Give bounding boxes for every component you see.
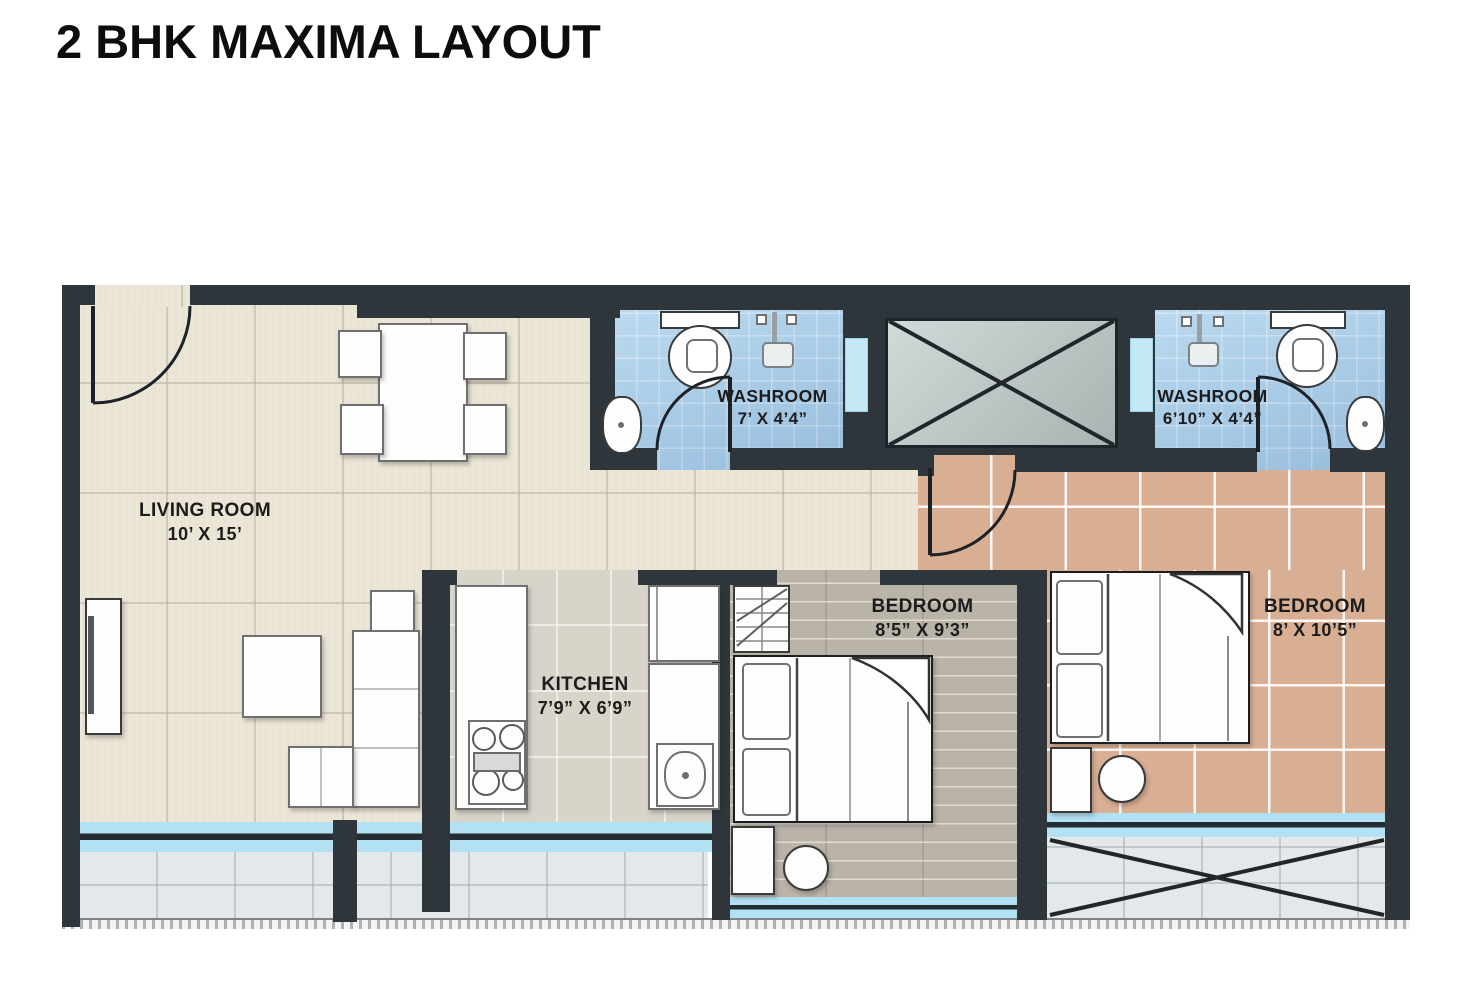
pillow [1056,580,1103,655]
dining-table [378,323,468,462]
shower-knob [1213,316,1224,327]
kitchen-dims: 7’9” X 6’9” [500,697,670,721]
washbasin-drain [618,422,624,428]
entrance-threshold [95,285,190,307]
washroom-2-dims: 6’10” X 4’4” [1130,408,1295,430]
kitchen-name: KITCHEN [500,672,670,697]
bedroom-divider [1017,570,1047,920]
shower-knob [756,314,767,325]
coffee-table [242,635,322,718]
washroom-1-name: WASHROOM [690,385,855,408]
washroom-1-bottom-wall-b [730,448,930,470]
bedroom-2-label: BEDROOM 8’ X 10’5” [1230,594,1400,643]
living-window-band [80,822,712,852]
bedroom-2-deck [1047,837,1387,918]
nightstand [731,826,775,895]
dining-chair [338,330,382,378]
shower-head [1188,342,1219,367]
toilet-flush [1292,338,1324,372]
living-room-name: LIVING ROOM [105,498,305,523]
washroom-2-label: WASHROOM 6’10” X 4’4” [1130,385,1295,431]
kitchen-top-wall-b [638,570,777,585]
wall-top-step [357,303,620,318]
pillow [742,663,791,740]
shower-head [762,342,794,368]
kitchen-left-wall [422,570,450,912]
washroom-1-label: WASHROOM 7’ X 4’4” [690,385,855,431]
stove [468,720,526,805]
shower-knob [1181,316,1192,327]
bedroom-1-label: BEDROOM 8’5” X 9’3” [840,594,1005,643]
tv-screen [88,616,94,714]
washroom-2-name: WASHROOM [1130,385,1295,408]
stool [783,845,829,891]
bedroom-2-name: BEDROOM [1230,594,1400,619]
living-room-dims: 10’ X 15’ [105,523,305,547]
washbasin-drain [1362,421,1368,427]
corridor-wall [1015,448,1257,472]
kitchen-sink-drain [682,772,689,779]
deck-pillar [333,820,357,922]
nightstand [1050,747,1092,813]
dining-chair [463,404,507,455]
shower-pipe [772,312,777,346]
washroom-2-bottom-wall [1330,448,1385,472]
pillow [1056,663,1103,738]
plan-bottom-edge [62,918,1410,929]
bedroom-2-dims: 8’ X 10’5” [1230,619,1400,643]
pillow [742,748,791,816]
bedroom-1-name: BEDROOM [840,594,1005,619]
duct-shaft [885,318,1118,448]
stool [1098,755,1146,803]
shower-knob [786,314,797,325]
deck [80,852,708,920]
sofa-corner-seat [288,746,354,808]
bedroom-1-dims: 8’5” X 9’3” [840,619,1005,643]
wall-top-mid [190,285,620,305]
wall-top-right [618,285,1410,310]
wall-left-outer [62,285,80,927]
dining-chair [340,404,384,455]
bedroom-2-corridor-floor [918,455,1385,570]
dresser [733,585,790,653]
bedroom-2-window-band [1047,813,1385,837]
dining-chair [463,332,507,380]
toilet-flush [686,339,718,373]
side-table [370,590,415,632]
bedroom-1-window-band [730,897,1017,918]
fridge [648,585,720,662]
floor-plan: 2 BHK MAXIMA LAYOUT LIVING ROOM 10’ X 15… [0,0,1457,1001]
washroom-1-dims: 7’ X 4’4” [690,408,855,430]
kitchen-label: KITCHEN 7’9” X 6’9” [500,672,670,721]
sofa-long-seat [352,630,420,808]
page-title: 2 BHK MAXIMA LAYOUT [56,14,601,69]
corridor-door-stub [918,448,934,476]
living-room-label: LIVING ROOM 10’ X 15’ [105,498,305,547]
